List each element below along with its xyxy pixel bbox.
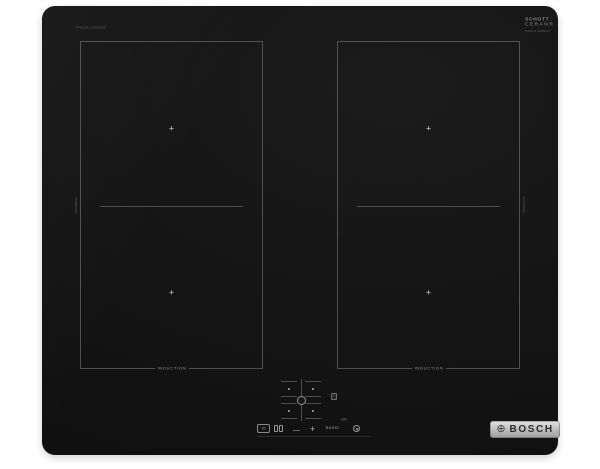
induction-label: INDUCTION xyxy=(412,366,445,370)
zone-dot xyxy=(312,410,315,413)
pan-center-cross: + xyxy=(169,289,174,298)
boost-button: boost xyxy=(326,426,339,430)
display-segment xyxy=(279,425,283,432)
zone-select-front-left xyxy=(281,403,297,419)
pan-center-cross: + xyxy=(426,125,431,134)
induction-label: INDUCTION xyxy=(155,366,188,370)
induction-hob-glass: PVQ611BB5E SCHOTT CERAN® MADE IN GERMANY… xyxy=(42,6,558,455)
zone-select-rear-left xyxy=(281,381,297,397)
pad-center-line xyxy=(301,379,302,421)
settings-dial-icon xyxy=(353,425,360,432)
zone-dot xyxy=(312,388,315,391)
cooking-zone-column-right: + + INDUCTION combiZone xyxy=(337,41,520,369)
cooking-zone-column-left: + + INDUCTION combiZone xyxy=(80,41,263,369)
bosch-wordmark: BOSCH xyxy=(510,425,554,435)
power-button: I0 xyxy=(257,424,270,433)
bosch-anchor-icon: ⊕ xyxy=(496,424,505,435)
model-number-label: PVQ611BB5E xyxy=(76,26,106,30)
display-segment xyxy=(274,425,278,432)
made-in-line: MADE IN GERMANY xyxy=(525,30,539,33)
minus-button: — xyxy=(293,427,300,434)
combizone-label: combiZone xyxy=(522,197,525,213)
bosch-logo: ⊕ BOSCH xyxy=(490,421,560,438)
product-photo: PVQ611BB5E SCHOTT CERAN® MADE IN GERMANY… xyxy=(0,0,600,469)
pause-icon xyxy=(331,393,337,400)
schott-ceran-logo: SCHOTT CERAN® MADE IN GERMANY xyxy=(525,17,555,36)
min-label: min xyxy=(341,418,347,422)
plus-button: + xyxy=(310,425,315,434)
combizone-label: combiZone xyxy=(75,197,78,213)
zone-dot xyxy=(288,410,291,413)
zone-divider-line xyxy=(357,206,500,207)
zone-select-front-right xyxy=(305,403,321,419)
control-strip: I0 — + boost min xyxy=(257,423,373,435)
combi-ring-icon xyxy=(297,396,306,405)
pan-center-cross: + xyxy=(426,289,431,298)
timer-display xyxy=(274,425,283,432)
zone-selector-pad xyxy=(277,377,327,423)
ceran-line: CERAN® xyxy=(525,22,546,27)
schott-line: SCHOTT xyxy=(525,17,546,22)
zone-divider-line xyxy=(100,206,243,207)
zone-select-rear-right xyxy=(305,381,321,397)
power-label: I0 xyxy=(261,427,265,431)
zone-dot xyxy=(288,388,291,391)
pan-center-cross: + xyxy=(169,125,174,134)
